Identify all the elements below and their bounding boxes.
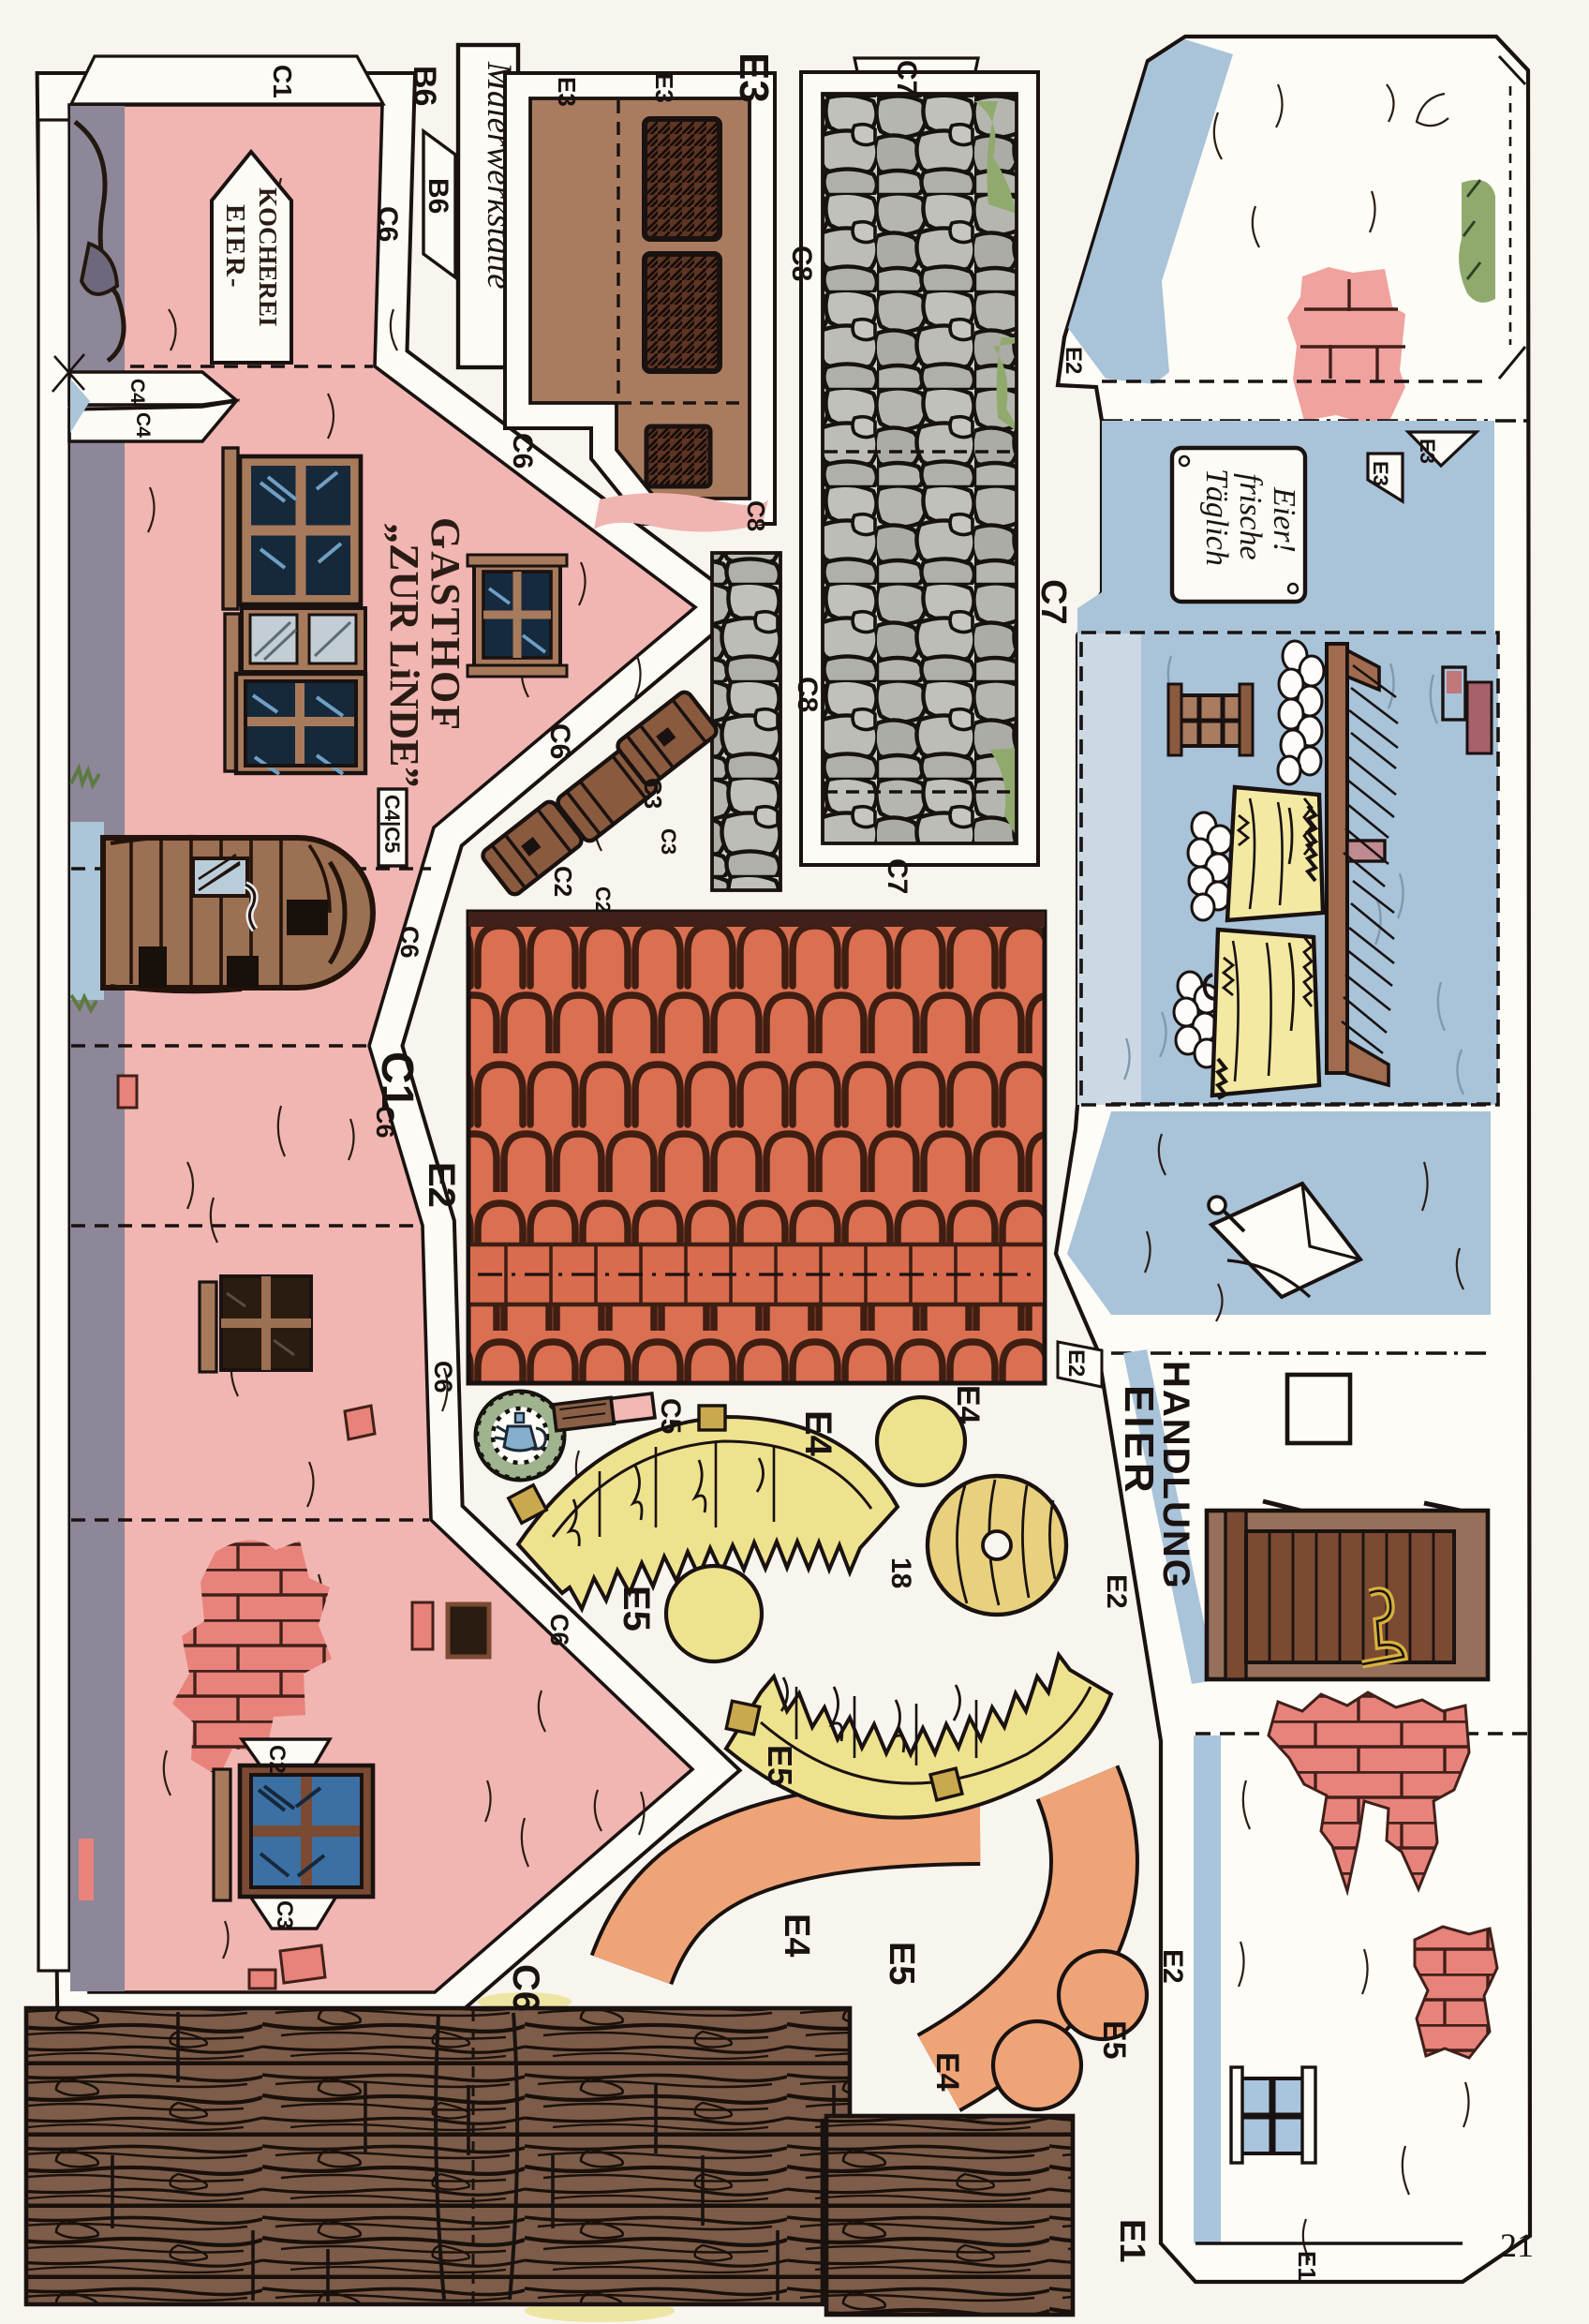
svg-text:EIER-: EIER- xyxy=(220,204,250,290)
svg-text:E5: E5 xyxy=(1096,2020,1132,2060)
svg-text:E1: E1 xyxy=(1112,2219,1151,2262)
svg-text:frische: frische xyxy=(1233,473,1268,560)
svg-text:C3: C3 xyxy=(272,1900,297,1929)
svg-text:E5: E5 xyxy=(882,1942,921,1985)
svg-text:E5: E5 xyxy=(616,1586,657,1631)
svg-text:E3: E3 xyxy=(1369,461,1392,486)
svg-text:C8: C8 xyxy=(742,500,770,531)
svg-text:GASTHOF: GASTHOF xyxy=(423,517,468,732)
svg-text:E4: E4 xyxy=(797,1410,839,1457)
svg-text:C1: C1 xyxy=(268,65,297,98)
svg-text:18: 18 xyxy=(885,1557,916,1588)
svg-text:C6: C6 xyxy=(507,433,538,469)
svg-text:C6: C6 xyxy=(505,1964,546,2012)
svg-text:C6: C6 xyxy=(372,206,403,242)
svg-text:C6: C6 xyxy=(371,1106,399,1139)
svg-text:E4: E4 xyxy=(950,1385,986,1424)
svg-text:E2: E2 xyxy=(1061,347,1086,374)
svg-text:E3: E3 xyxy=(731,52,777,103)
svg-text:C2: C2 xyxy=(549,866,577,897)
svg-text:Täglich: Täglich xyxy=(1199,469,1234,566)
svg-text:E3: E3 xyxy=(1416,439,1439,464)
svg-text:E4: E4 xyxy=(929,2052,965,2092)
svg-text:HANDLUNG: HANDLUNG xyxy=(1155,1361,1196,1590)
svg-text:C2: C2 xyxy=(591,886,615,913)
svg-text:C5: C5 xyxy=(655,1398,686,1434)
svg-text:C4: C4 xyxy=(126,379,148,404)
svg-text:21: 21 xyxy=(1500,2227,1534,2264)
svg-text:C7: C7 xyxy=(891,60,922,96)
svg-text:KOCHEREI: KOCHEREI xyxy=(254,187,282,327)
svg-text:C8: C8 xyxy=(792,677,823,712)
svg-text:C6: C6 xyxy=(545,1614,573,1646)
svg-text:C1: C1 xyxy=(372,1051,422,1109)
svg-text:„ZUR LiNDE”: „ZUR LiNDE” xyxy=(381,523,427,787)
svg-text:C6: C6 xyxy=(429,1361,457,1393)
svg-text:B6: B6 xyxy=(407,66,442,106)
svg-text:E2: E2 xyxy=(421,1162,462,1208)
svg-text:C3: C3 xyxy=(657,828,680,855)
svg-text:E4: E4 xyxy=(777,1914,816,1957)
svg-text:E1: E1 xyxy=(1293,2251,1321,2281)
svg-text:Eier!: Eier! xyxy=(1267,486,1301,553)
svg-text:E3: E3 xyxy=(553,77,581,107)
svg-text:E2: E2 xyxy=(1063,1349,1089,1377)
svg-text:C2: C2 xyxy=(264,1745,290,1774)
svg-text:C7: C7 xyxy=(1033,579,1073,625)
svg-text:EIER: EIER xyxy=(1116,1385,1162,1497)
svg-text:C3: C3 xyxy=(639,778,667,809)
svg-text:C6: C6 xyxy=(544,723,575,759)
svg-text:E2: E2 xyxy=(1157,1949,1188,1984)
svg-text:C8: C8 xyxy=(786,246,817,281)
svg-text:C4: C4 xyxy=(132,412,154,438)
svg-text:C6: C6 xyxy=(395,926,423,959)
svg-text:E5: E5 xyxy=(761,1745,799,1786)
svg-text:E3: E3 xyxy=(650,73,678,103)
svg-text:C4|C5: C4|C5 xyxy=(380,795,404,853)
svg-text:E2: E2 xyxy=(1101,1574,1132,1609)
svg-text:C7: C7 xyxy=(882,858,913,894)
svg-text:B6: B6 xyxy=(423,178,453,214)
